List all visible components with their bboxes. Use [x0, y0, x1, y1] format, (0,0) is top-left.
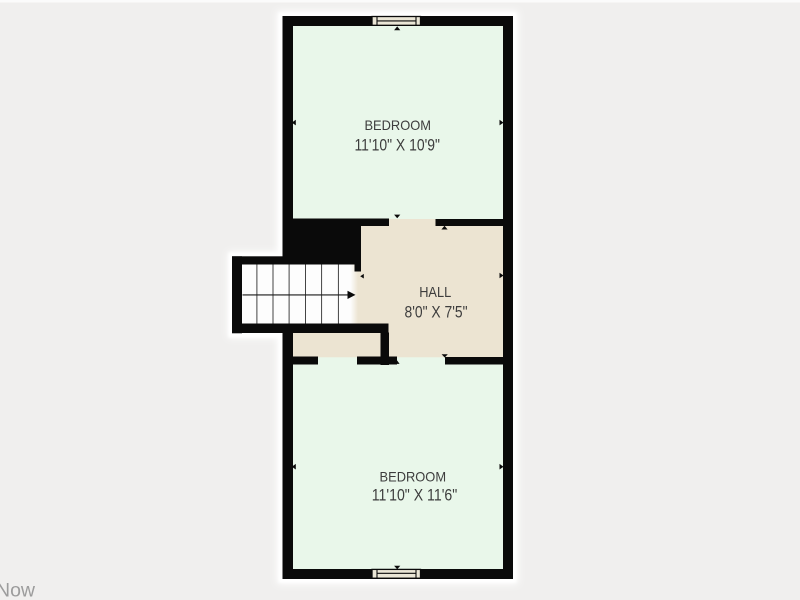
svg-text:BEDROOM: BEDROOM — [364, 117, 431, 133]
svg-text:Now: Now — [0, 580, 36, 600]
svg-text:11'10" X 11'6": 11'10" X 11'6" — [372, 486, 458, 505]
svg-text:8'0" X 7'5": 8'0" X 7'5" — [405, 302, 468, 321]
svg-text:BEDROOM: BEDROOM — [380, 469, 447, 485]
svg-text:HALL: HALL — [419, 285, 451, 301]
svg-text:11'10" X 10'9": 11'10" X 10'9" — [354, 135, 440, 154]
